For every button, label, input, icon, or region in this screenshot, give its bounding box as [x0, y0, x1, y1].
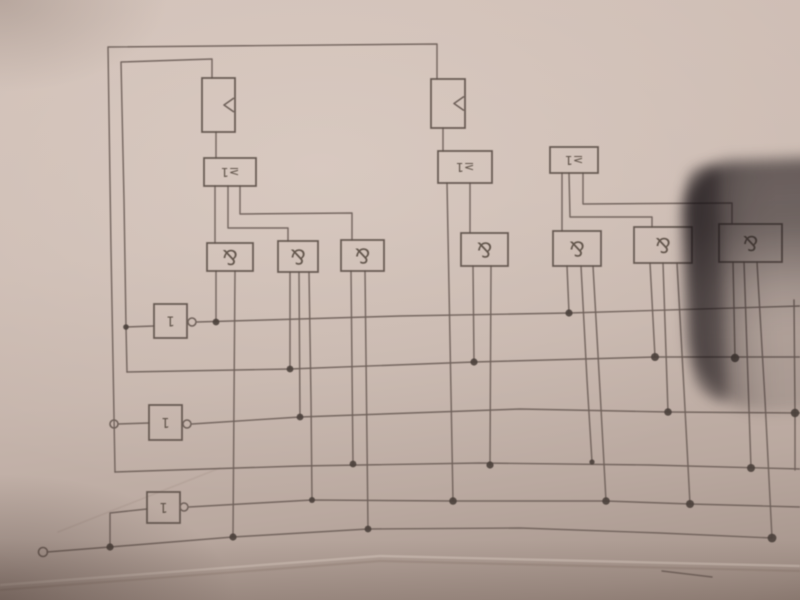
gate-flipflop-2-clock-chevron	[454, 97, 464, 111]
wire-and6-drop-row3	[663, 263, 668, 412]
gate-or-3-label: ≥1	[565, 153, 583, 168]
gate-not-2-label: 1	[161, 414, 169, 429]
junction-dot	[486, 461, 493, 468]
wire-and1-drop-row6	[233, 271, 235, 537]
inverter-bubble	[180, 503, 188, 511]
wire-and5-drop-row1	[567, 266, 569, 313]
gate-and-6-label: &	[655, 233, 671, 257]
gate-flipflop-1-clock-chevron	[224, 98, 234, 112]
junction-dot	[287, 366, 294, 373]
circuit-sketch-svg: ≥1≥1≥1&&&&&&&111	[0, 0, 800, 600]
wire-and4-drop-row2	[473, 266, 474, 362]
wire-and3-drop-row6	[365, 271, 368, 529]
gate-and-1-label: &	[222, 245, 238, 269]
junction-dot	[589, 459, 594, 464]
wire-and4-drop-row4	[490, 266, 491, 465]
inverter-bubble	[188, 318, 196, 326]
photo-of-paper-circuit: ≥1≥1≥1&&&&&&&111	[0, 0, 800, 600]
gate-flipflop-1-box	[202, 78, 235, 132]
gate-and-5-label: &	[569, 237, 585, 261]
wire-or1-to-and3	[240, 186, 352, 240]
wire-not2-input	[118, 423, 149, 424]
inverter-bubble	[183, 420, 191, 428]
wire-and5-drop-row4	[581, 266, 592, 462]
wire-bus-row3	[192, 409, 800, 424]
wire-and2-drop-row3	[299, 272, 300, 417]
wire-and3-drop-row4	[351, 271, 353, 464]
junction-dot	[470, 358, 477, 365]
junction-dot	[213, 319, 220, 326]
wire-bus-row4	[115, 463, 800, 472]
gate-or-2-label: ≥1	[456, 160, 474, 175]
wire-bus-row6	[47, 528, 772, 552]
gate-not-1-label: 1	[166, 313, 174, 328]
wire-bus-row5	[189, 500, 800, 507]
gate-and-3-label: &	[355, 244, 371, 268]
wire-stray-pencil-mark	[662, 571, 712, 577]
junction-dot	[768, 534, 777, 543]
wire-or2-to-row5	[447, 183, 453, 501]
junction-dot	[123, 324, 129, 330]
junction-dot	[309, 497, 315, 503]
junction-dot	[602, 497, 610, 505]
wire-not1-input	[126, 326, 154, 327]
wire-not3-input	[110, 509, 147, 547]
junction-dot	[651, 353, 659, 361]
gate-and-4-label: &	[477, 238, 493, 262]
gate-and-2-label: &	[290, 245, 306, 269]
junction-dot	[106, 543, 113, 550]
junction-dot	[365, 526, 372, 533]
junction-dot	[565, 309, 572, 316]
junction-dot	[229, 533, 236, 540]
gate-flipflop-2-box	[431, 79, 465, 128]
junction-dot	[350, 461, 357, 468]
crease-faint-diagonal-crease	[58, 468, 220, 532]
input-terminal	[39, 548, 48, 557]
junction-dot	[686, 500, 694, 508]
junction-dot	[297, 414, 304, 421]
wire-and5-drop-row5	[593, 266, 606, 501]
junction-dot	[449, 497, 457, 505]
wire-feedback-outer-top	[108, 44, 437, 472]
gate-not-3-label: 1	[159, 499, 167, 514]
gate-or-1-label: ≥1	[221, 165, 239, 180]
wire-or3-to-and6	[569, 173, 652, 227]
junction-dot	[747, 464, 755, 472]
junction-dot	[664, 408, 672, 416]
